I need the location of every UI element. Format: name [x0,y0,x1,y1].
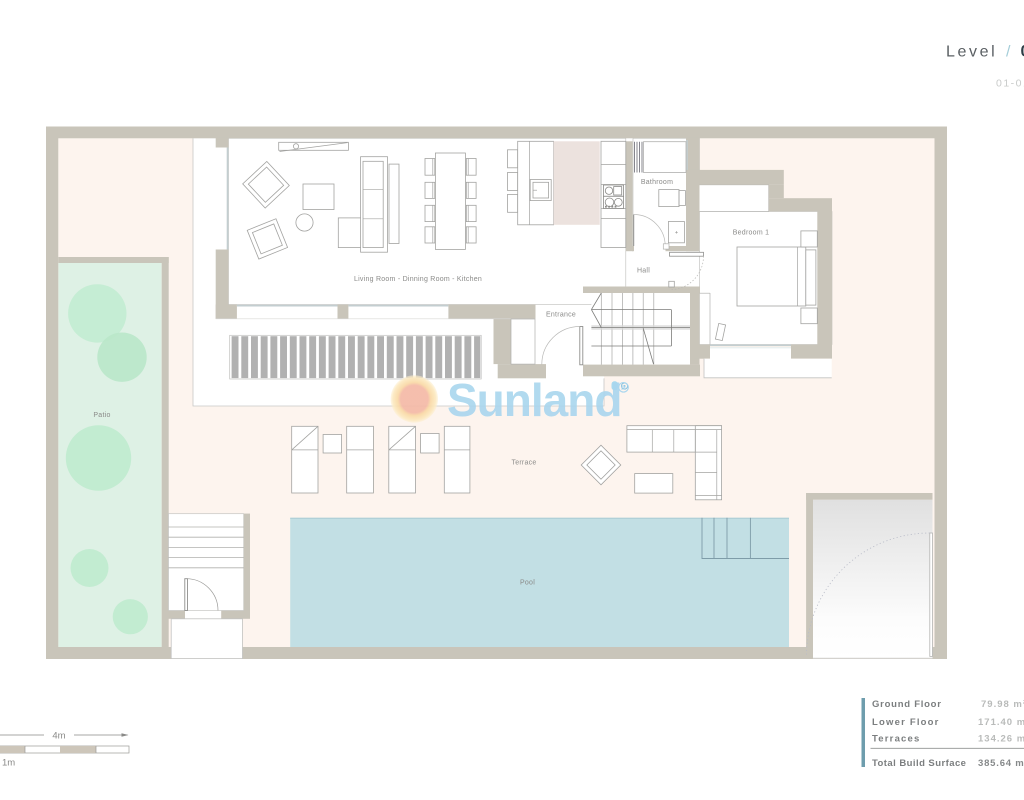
svg-text:79.98 m²: 79.98 m² [981,699,1024,710]
svg-text:/: / [1006,44,1011,61]
svg-text:Entrance: Entrance [546,312,576,319]
svg-text:Lower Floor: Lower Floor [872,717,940,728]
svg-text:Ground Floor: Ground Floor [872,699,942,710]
svg-text:Terrace: Terrace [511,460,536,467]
svg-text:134.26 m²: 134.26 m² [978,734,1024,745]
svg-text:171.40 m²: 171.40 m² [978,717,1024,728]
svg-text:Sunland: Sunland [447,374,621,426]
svg-text:Patio: Patio [93,412,110,419]
svg-text:0: 0 [1021,43,1024,61]
svg-text:Living Room - Dinning Room - K: Living Room - Dinning Room - Kitchen [354,276,482,283]
svg-text:1m: 1m [2,758,15,769]
svg-text:Hall: Hall [637,268,650,275]
svg-text:Level: Level [946,44,997,61]
svg-text:Pool: Pool [520,580,535,587]
svg-text:Total Build Surface: Total Build Surface [872,758,966,769]
svg-text:385.64 m²: 385.64 m² [978,758,1024,769]
svg-text:01-01: 01-01 [996,78,1024,90]
svg-text:R: R [621,385,626,392]
svg-text:Bedroom 1: Bedroom 1 [733,230,770,237]
svg-text:Bathroom: Bathroom [641,179,673,186]
svg-text:Terraces: Terraces [872,734,921,745]
svg-text:4m: 4m [52,731,65,742]
